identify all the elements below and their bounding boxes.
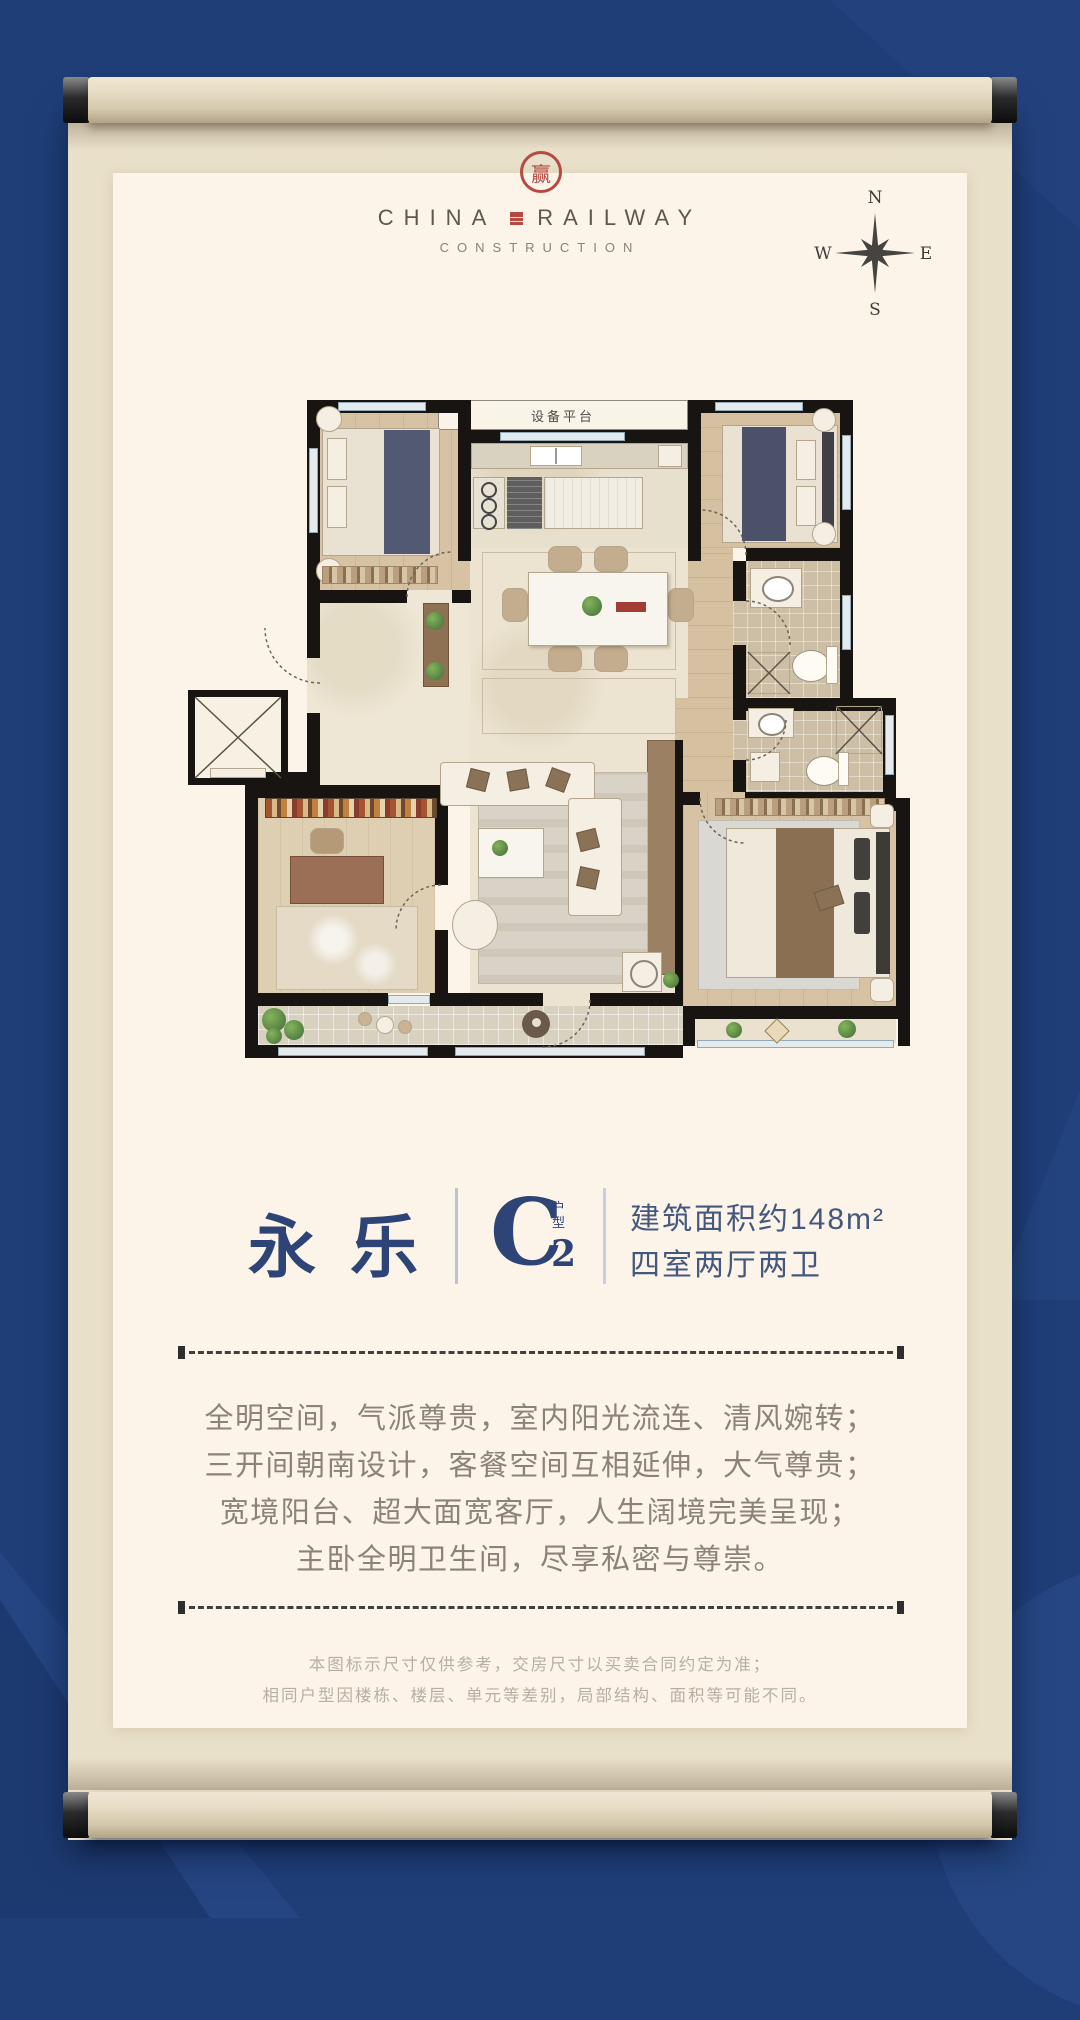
scroll-rod-bottom-cap-right [990,1792,1017,1838]
scroll-rod-bottom-cap-left [63,1792,90,1838]
wall [896,811,910,1006]
bookshelf-icon [265,798,437,818]
plant-icon [492,840,508,856]
wall [470,993,543,1006]
wall [733,561,746,601]
title-divider [603,1188,606,1284]
description: 全明空间，气派尊贵，室内阳光流连、清风婉转； 三开间朝南设计，客餐空间互相延伸，… [140,1396,940,1584]
scroll-paper-bottom-shade [68,1758,1012,1790]
wall [683,1006,695,1046]
plant-icon [838,1020,856,1038]
toilet-tank [826,646,838,684]
window [842,435,851,510]
window [388,995,430,1004]
bistro-chair [358,1012,372,1026]
elevator-door [210,768,266,778]
brand-name-left: CHINA [378,205,496,231]
pet-mat-dot [532,1018,541,1027]
window [842,595,851,650]
divider-line [189,1351,893,1354]
rug-icon [322,566,438,584]
wall [733,645,746,698]
divider-cap [178,1601,185,1614]
sink-bowl [762,576,794,602]
window [885,715,894,775]
brand-name-right: RAILWAY [537,205,702,231]
brand-mark-icon [510,212,523,225]
sofa-icon [568,798,622,916]
wall [733,711,746,720]
table-runner [616,602,646,612]
window [455,1047,645,1056]
bed-headboard [822,432,834,536]
laundry-cabinet [750,752,780,782]
rug-icon [276,906,418,990]
unit-name: 永乐 [248,1192,452,1291]
plant-icon [426,612,444,630]
bed-pillow [796,440,816,480]
armchair-icon [452,900,498,950]
plant-icon [726,1022,742,1038]
dining-chair [548,646,582,672]
nightstand-icon [812,408,836,432]
bed-pillow [854,892,870,934]
bed-pillow [327,486,347,528]
wall [452,590,471,603]
description-line: 全明空间，气派尊贵，室内阳光流连、清风婉转； [140,1396,940,1443]
wall [257,785,448,798]
divider-line [189,1606,893,1609]
toilet-icon [806,756,842,786]
wall [307,590,407,603]
window [715,402,803,411]
sink-divider [555,448,557,464]
wall [683,1006,910,1019]
room-master-corridor [675,698,733,805]
divider-cap [897,1346,904,1359]
disclaimer: 本图标示尺寸仅供参考，交房尺寸以买卖合同约定为准； 相同户型因楼栋、楼层、单元等… [140,1650,940,1712]
sink-bowl [758,713,786,736]
elevator-wall [281,690,288,785]
dining-chair [668,588,694,622]
brand-name: CHINA RAILWAY [290,203,790,233]
room-hall-to-bath [688,548,733,698]
window [500,432,625,441]
plant-icon [663,972,679,988]
appliance-icon [658,445,682,467]
wall [458,400,471,561]
dish-counter [544,477,643,529]
shower-icon [748,652,790,694]
description-line: 三开间朝南设计，客餐空间互相延伸，大气尊贵； [140,1443,940,1490]
desk-icon [290,856,384,904]
bistro-table-icon [376,1016,394,1034]
wall [307,603,320,658]
wall [683,792,700,805]
plant-icon [266,1028,282,1044]
dashed-divider [178,1346,904,1359]
tv-wall [647,740,677,975]
kitchen-island-dark [507,477,542,529]
scroll-rod-cap-left [63,77,90,123]
dining-chair [502,588,528,622]
wall [435,930,448,1006]
unit-area-line: 建筑面积约148m² [630,1194,885,1238]
plant-icon [426,662,444,680]
burner [481,482,497,498]
wall [590,993,683,1006]
wall [688,400,701,561]
description-line: 宽境阳台、超大面宽客厅，人生阔境完美呈现； [140,1490,940,1537]
hall-floor-border [482,678,676,734]
unit-type-number: 2 [551,1233,576,1275]
nightstand-icon [316,406,342,432]
bed-pillow [854,838,870,880]
elevator-wall [188,690,288,697]
wall [688,548,701,561]
scroll-rod-bottom [88,1792,992,1838]
svg-text:E: E [920,244,932,264]
dashed-divider [178,1601,904,1614]
divider-cap [897,1601,904,1614]
sofa-pillow [576,866,600,890]
bed-throw [742,427,786,541]
washer-drum [630,960,658,988]
compass-n: N [868,188,883,208]
window [338,402,426,411]
dining-chair [548,546,582,572]
dining-chair [594,546,628,572]
disclaimer-line: 本图标示尺寸仅供参考，交房尺寸以买卖合同约定为准； [140,1650,940,1681]
wall [898,1006,910,1046]
equipment-platform-label: 设备平台 [531,406,595,425]
scroll-rod-top [88,77,992,123]
unit-layout-line: 四室两厅两卫 [630,1240,822,1284]
bed-throw [384,430,430,554]
wall [257,993,388,1006]
nightstand-icon [870,804,894,828]
equipment-platform: 设备平台 [438,400,688,430]
description-line: 主卧全明卫生间，尽享私密与尊崇。 [140,1537,940,1584]
burner [481,498,497,514]
svg-text:W: W [814,244,832,264]
svg-text:S: S [869,300,881,320]
bed-pillow [327,438,347,480]
plant-icon [582,596,602,616]
bistro-chair [398,1020,412,1034]
plant-icon [284,1020,304,1040]
disclaimer-line: 相同户型因楼栋、楼层、单元等差别，局部结构、面积等可能不同。 [140,1681,940,1712]
rug-icon [715,798,885,816]
window [309,448,318,533]
wall [675,740,683,1006]
window [278,1047,428,1056]
shower-icon [836,706,882,754]
floor-plan: 设备平台 [170,400,910,1070]
brand-seal-icon: 赢 [520,151,562,193]
elevator-wall [188,778,288,785]
compass-icon: N E S W [812,185,938,321]
sofa-pillow [506,768,529,791]
burner [481,514,497,530]
coffee-table-icon [478,828,544,878]
scroll-rod-cap-right [990,77,1017,123]
window-bay [697,1040,894,1048]
divider-cap [178,1346,185,1359]
room-balcony [258,1006,683,1045]
dining-chair [594,646,628,672]
poster: 赢 CHINA RAILWAY CONSTRUCTION N E S W [0,0,1080,1918]
elevator-cab [195,697,281,778]
scroll-paper-top-shade [68,122,1012,150]
bed-headboard [876,832,890,974]
title-divider [455,1188,458,1284]
nightstand-icon [812,522,836,546]
elevator-wall [188,690,195,785]
desk-chair [310,828,344,854]
toilet-tank [838,752,849,786]
bed-pillow [796,486,816,526]
unit-type-tag: 户型 [552,1200,567,1230]
wall [733,760,746,792]
brand-subtitle: CONSTRUCTION [290,240,790,255]
nightstand-icon [870,978,894,1002]
wall [245,785,258,1058]
wall [746,548,853,561]
toilet-icon [792,650,830,682]
